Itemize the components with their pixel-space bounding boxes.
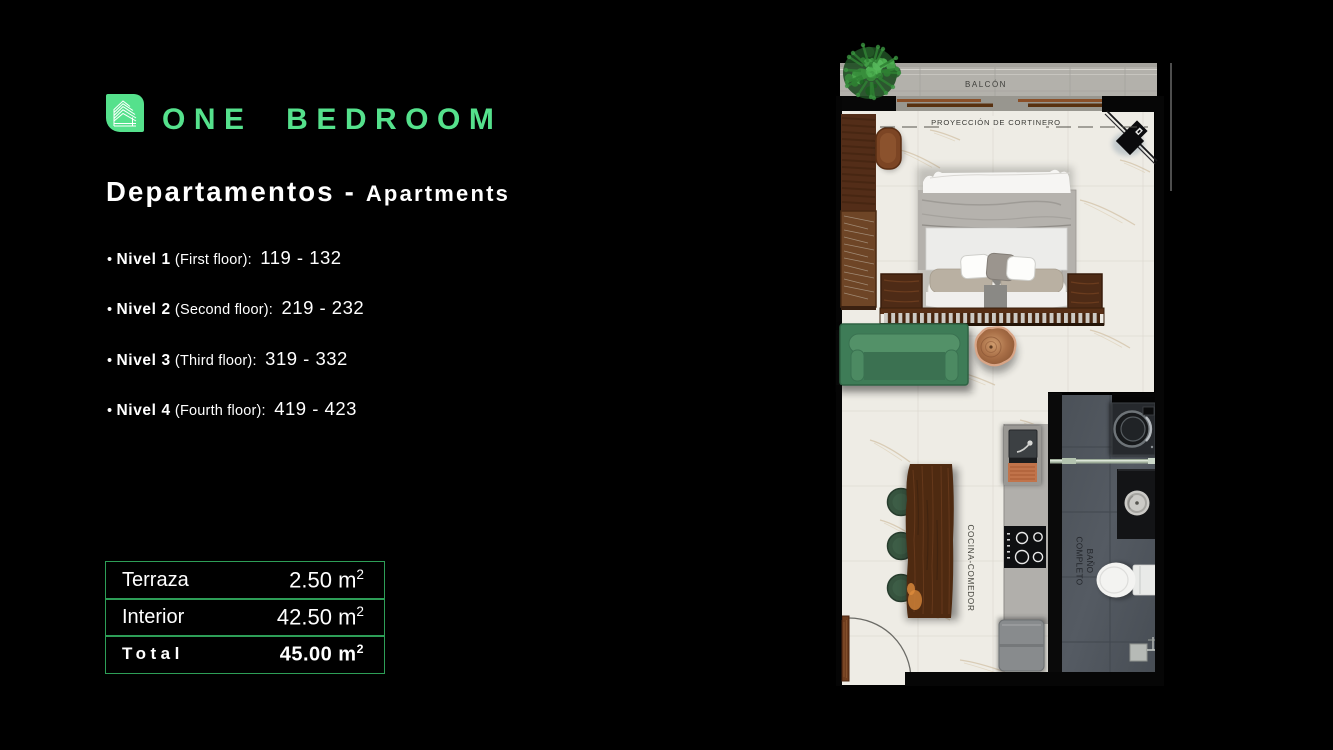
svg-text:COCINA-COMEDOR: COCINA-COMEDOR: [966, 524, 975, 611]
svg-text:BALCÓN: BALCÓN: [965, 80, 1007, 89]
svg-text:PROYECCIÓN DE CORTINERO: PROYECCIÓN DE CORTINERO: [931, 118, 1061, 127]
